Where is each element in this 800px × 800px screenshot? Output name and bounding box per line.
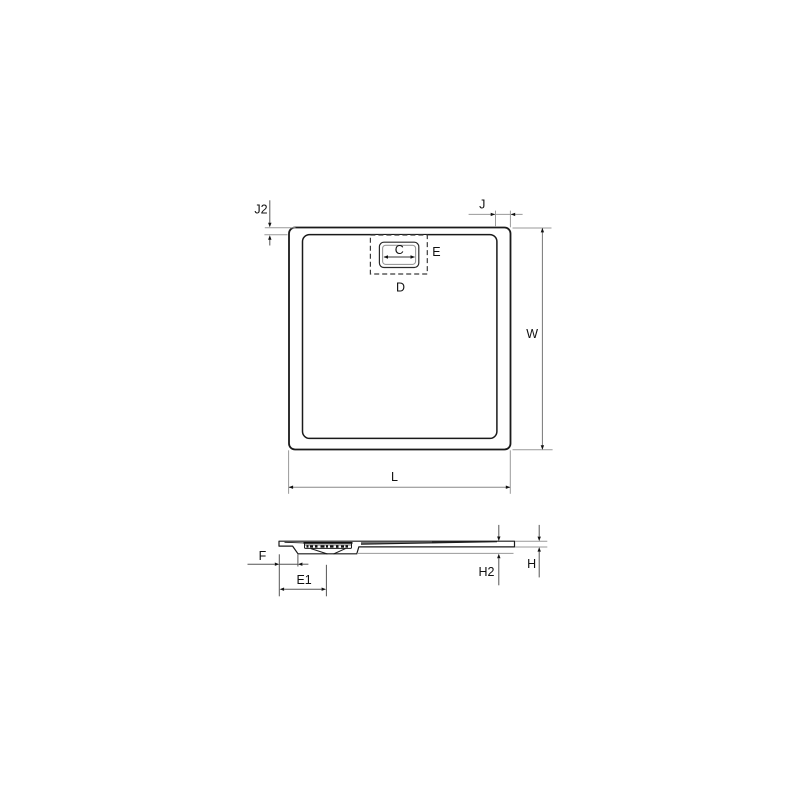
svg-text:L: L <box>391 470 398 484</box>
svg-text:H: H <box>527 557 536 571</box>
svg-text:J2: J2 <box>254 202 267 216</box>
svg-text:E1: E1 <box>296 573 311 587</box>
svg-text:C: C <box>395 243 404 257</box>
svg-text:J: J <box>479 198 485 212</box>
svg-text:W: W <box>526 327 538 341</box>
svg-text:F: F <box>259 549 267 563</box>
svg-text:H2: H2 <box>479 565 495 579</box>
svg-text:E: E <box>432 245 440 259</box>
svg-text:D: D <box>396 281 405 295</box>
